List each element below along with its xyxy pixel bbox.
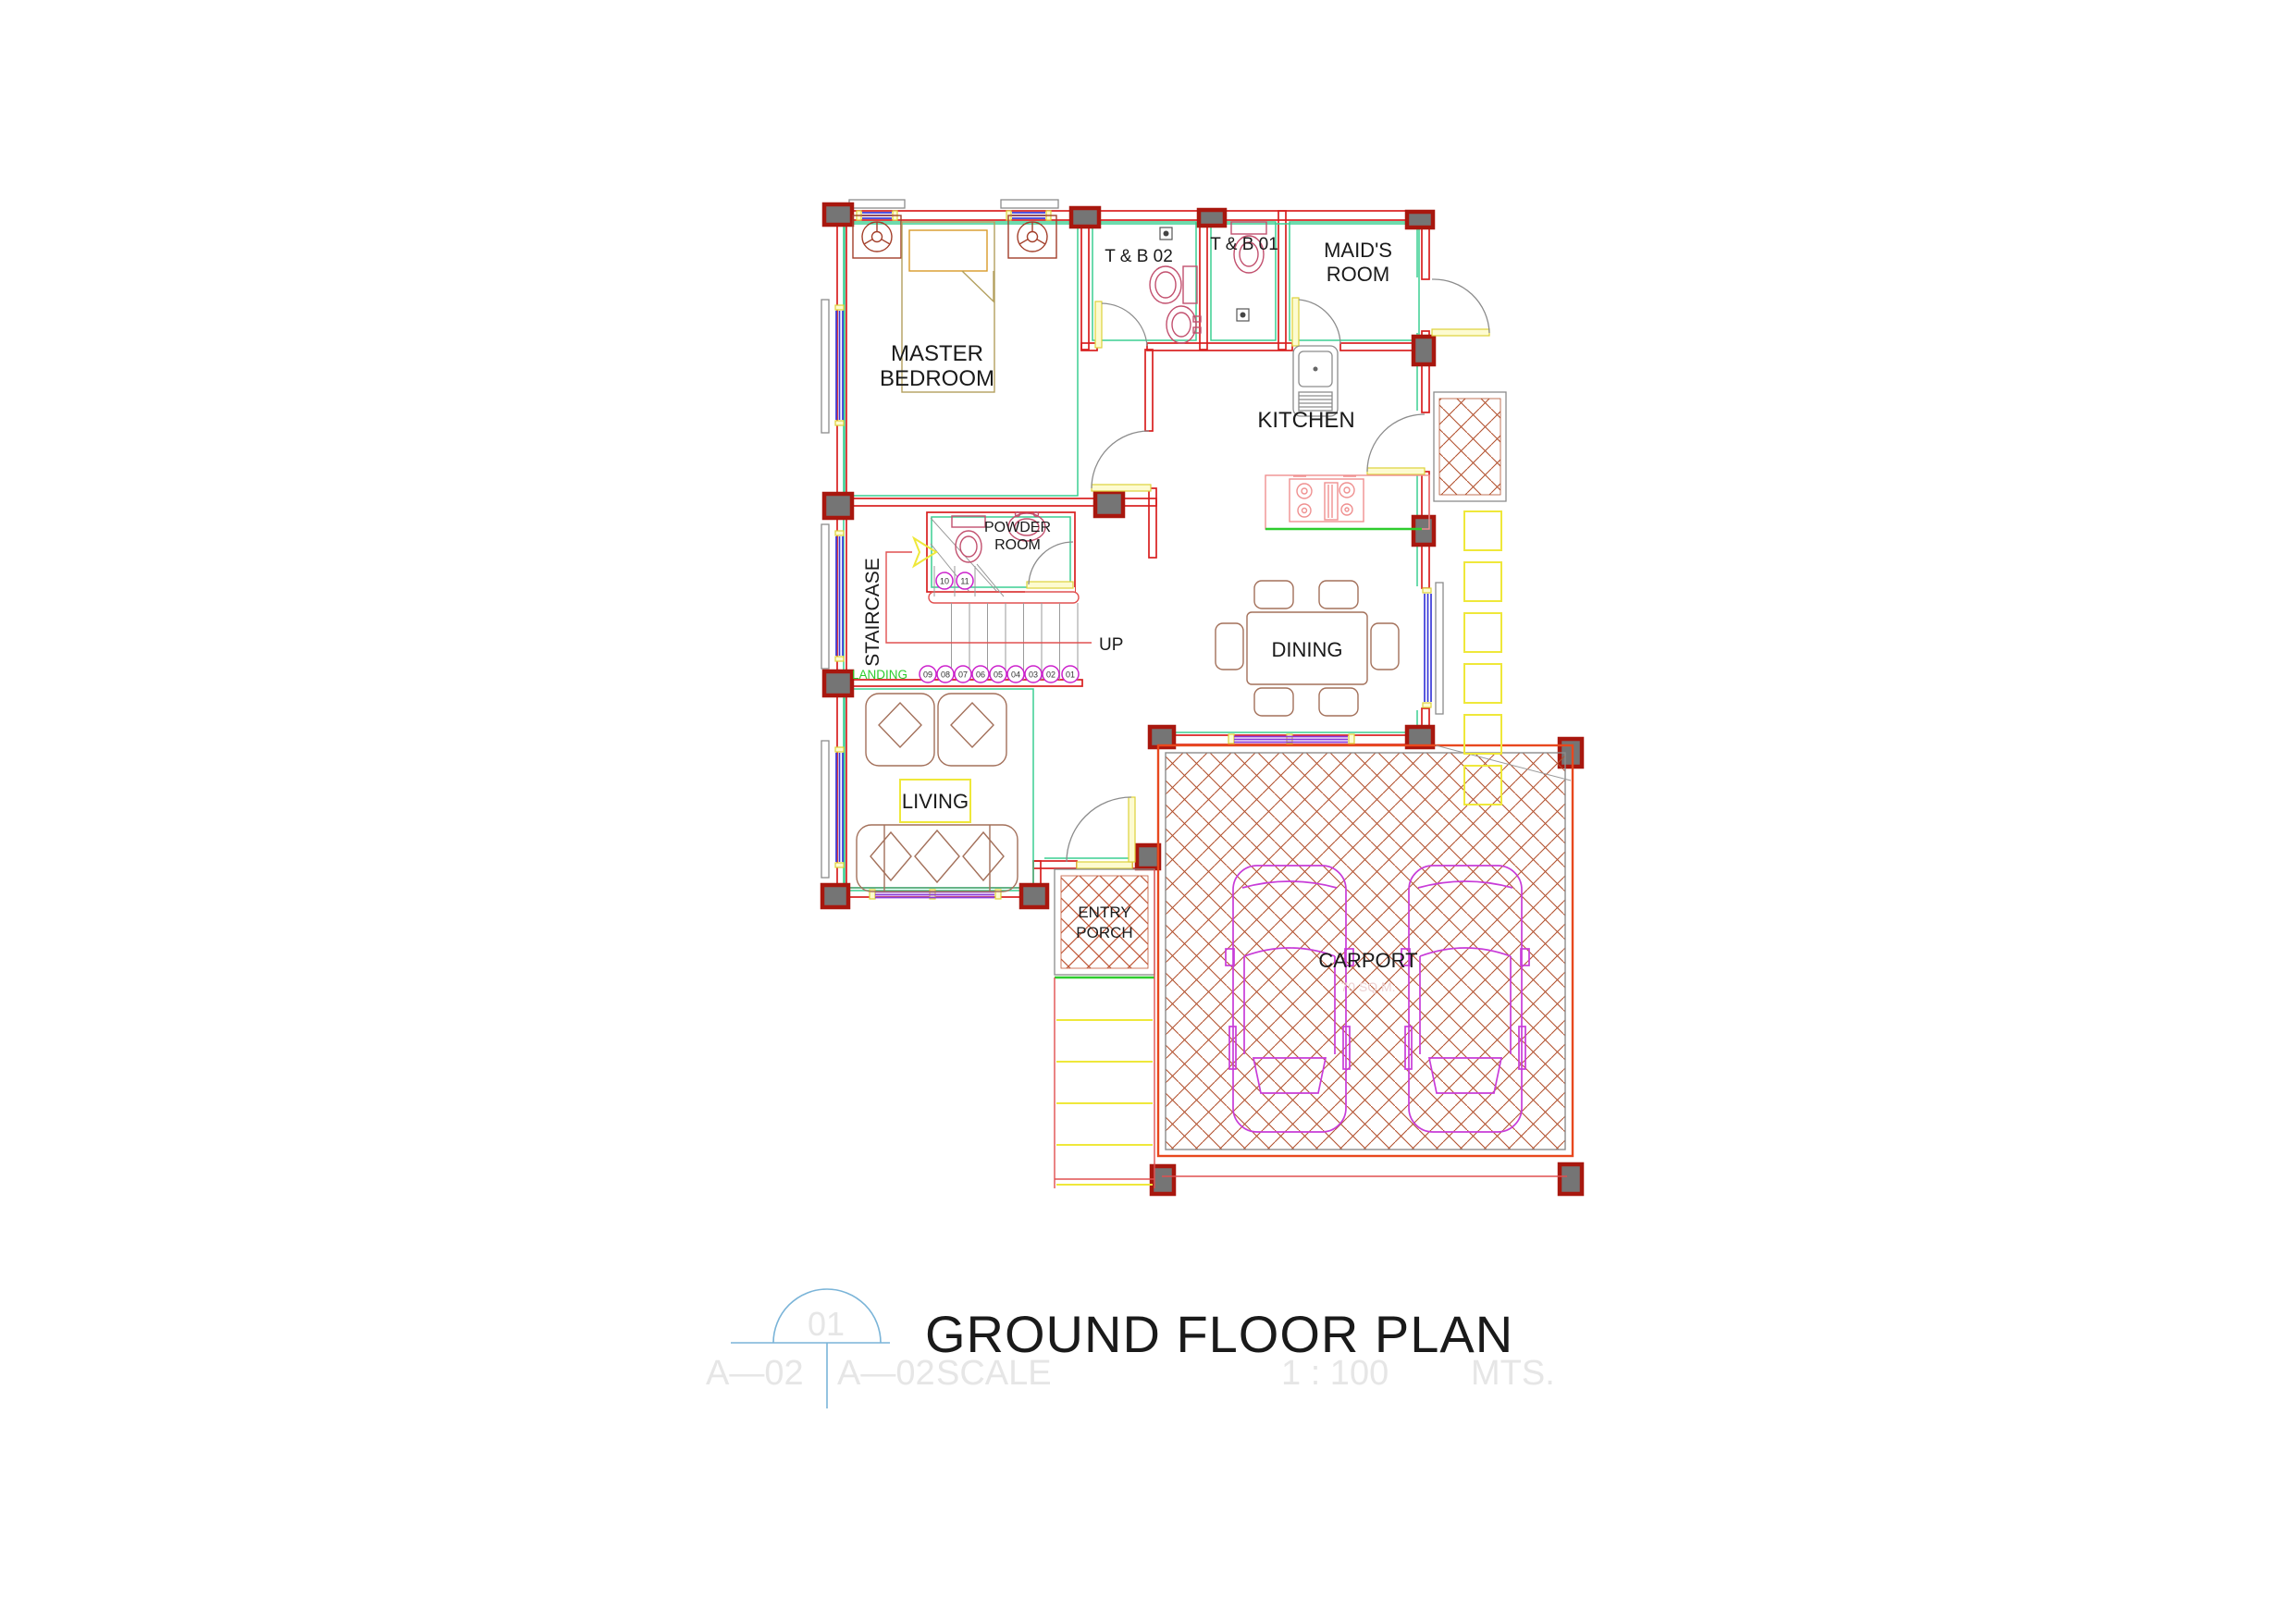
armchair [866,694,934,766]
living-room: LIVING [857,694,1018,891]
master-bedroom-label-2: BEDROOM [880,366,994,391]
exterior-right [1434,392,1506,805]
toilet-icon [1150,266,1197,303]
landing-label: LANDING [852,668,907,682]
svg-text:07: 07 [958,670,968,680]
stair-direction-arrow [914,538,936,566]
svg-text:06: 06 [976,670,985,680]
svg-text:11: 11 [960,577,969,586]
carport-label: CARPORT [1318,949,1417,972]
kitchen-sink-icon [1293,346,1338,416]
svg-text:03: 03 [1029,670,1038,680]
master-bedroom-label-1: MASTER [891,341,983,366]
svg-text:02: 02 [1046,670,1055,680]
window-sill [849,200,905,208]
svg-text:08: 08 [941,670,950,680]
bathroom-tb01: T & B 01 [1210,222,1278,321]
bathroom-tb02: T & B 02 [1105,227,1201,343]
svg-text:10: 10 [940,577,949,586]
svg-text:05: 05 [994,670,1003,680]
drawing-title: GROUND FLOOR PLAN [925,1305,1513,1363]
powder-room-label-1: POWDER [984,520,1051,535]
powder-room-label-2: ROOM [994,537,1041,553]
kitchen-label: KITCHEN [1257,408,1354,433]
living-label: LIVING [902,790,969,813]
entry-porch-label-1: ENTRY [1078,904,1130,921]
maids-room-label-2: ROOM [1327,263,1389,286]
stove-icon [1290,476,1364,522]
dining-label: DINING [1272,638,1343,661]
sofa [857,825,1018,891]
svg-text:09: 09 [923,670,932,680]
svg-text:01: 01 [1066,670,1075,680]
entry-porch-label-2: PORCH [1076,924,1132,941]
door-leaf [1092,485,1151,491]
entry-porch: ENTRY PORCH [1055,869,1154,1188]
floor-plan-svg: MASTER BEDROOM T & B 02 T & B 01 MAID'S … [0,0,2296,1623]
svg-text:04: 04 [1011,670,1020,680]
kitchen: KITCHEN [1257,346,1429,529]
staircase-label: STAIRCASE [862,558,883,666]
detail-bubble-number: 01 [808,1305,845,1343]
dining-room: DINING [1216,581,1399,716]
armchair [938,694,1006,766]
tb02-label: T & B 02 [1105,247,1173,266]
maids-room: MAID'S ROOM [1324,239,1392,286]
floor-plan-sheet: MASTER BEDROOM T & B 02 T & B 01 MAID'S … [0,0,2296,1623]
sheet-ref-b: A—02 [837,1354,935,1393]
title-block: A—02 A—02 SCALE 1 : 100 MTS. 01 GROUND F… [706,1289,1555,1408]
tb01-label: T & B 01 [1210,235,1278,254]
up-label: UP [1099,635,1123,655]
carport: CARPORT 70 SQ.M. [1158,745,1573,1176]
carport-area-note: 70 SQ.M. [1340,979,1395,994]
master-bedroom: MASTER BEDROOM [853,215,1056,392]
staircase: UP STAIRCASE LANDING 09 08 07 06 05 04 0… [852,538,1123,682]
maids-room-label-1: MAID'S [1324,239,1392,262]
toilet-icon [952,516,985,562]
sheet-ref-a: A—02 [706,1354,804,1393]
